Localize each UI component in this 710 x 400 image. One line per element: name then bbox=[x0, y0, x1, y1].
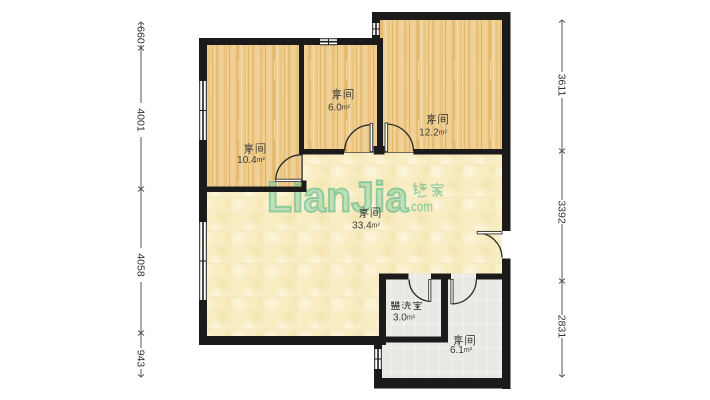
svg-text:3392: 3392 bbox=[556, 200, 568, 224]
svg-text:4058: 4058 bbox=[135, 253, 147, 277]
svg-text:.com: .com bbox=[408, 200, 433, 216]
svg-text:4001: 4001 bbox=[135, 108, 147, 132]
svg-text:660: 660 bbox=[135, 26, 147, 44]
svg-text:3611: 3611 bbox=[556, 74, 568, 97]
svg-text:2831: 2831 bbox=[556, 315, 568, 339]
svg-text:943: 943 bbox=[135, 350, 147, 368]
